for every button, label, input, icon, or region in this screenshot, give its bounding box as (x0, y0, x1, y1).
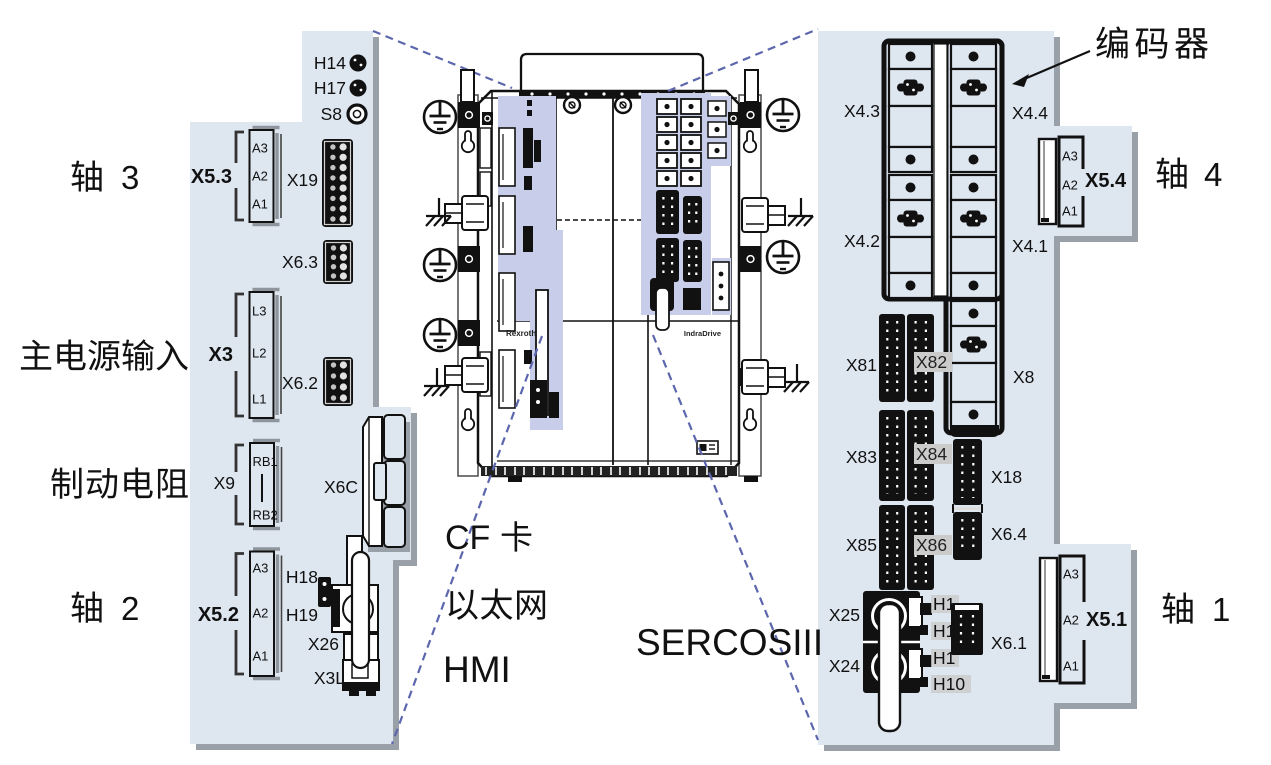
svg-text:X81: X81 (846, 355, 877, 375)
svg-text:X4.1: X4.1 (1012, 236, 1048, 256)
svg-text:4: 4 (1204, 156, 1222, 193)
svg-text:HMI: HMI (443, 649, 511, 690)
svg-text:3: 3 (121, 159, 139, 196)
svg-text:X6.3: X6.3 (282, 252, 318, 272)
svg-text:X5.4: X5.4 (1085, 170, 1127, 192)
svg-text:SERCOSIII: SERCOSIII (636, 622, 823, 663)
svg-text:X85: X85 (846, 535, 877, 555)
svg-text:X82: X82 (916, 352, 947, 372)
svg-text:A1: A1 (252, 197, 268, 212)
svg-text:L2: L2 (252, 346, 266, 361)
svg-text:S8: S8 (321, 104, 342, 124)
svg-text:X84: X84 (916, 444, 947, 464)
svg-text:X9: X9 (214, 473, 235, 493)
svg-text:RB2: RB2 (253, 508, 278, 523)
svg-text:A3: A3 (1063, 567, 1079, 582)
svg-text:2: 2 (121, 590, 139, 627)
svg-text:L1: L1 (252, 392, 266, 407)
svg-text:X5.1: X5.1 (1086, 609, 1127, 631)
svg-text:X8: X8 (1013, 367, 1034, 387)
svg-text:X4.3: X4.3 (844, 101, 880, 121)
svg-text:X26: X26 (308, 634, 339, 654)
svg-text:IndraDrive: IndraDrive (684, 329, 721, 338)
svg-text:A3: A3 (1062, 149, 1078, 164)
svg-text:A1: A1 (1063, 659, 1079, 674)
svg-text:X6.1: X6.1 (991, 633, 1027, 653)
svg-text:X4.2: X4.2 (844, 231, 880, 251)
svg-text:RB1: RB1 (253, 454, 278, 469)
svg-text:X19: X19 (287, 170, 318, 190)
svg-text:H10: H10 (933, 674, 965, 694)
svg-text:X5.2: X5.2 (198, 604, 239, 626)
svg-text:1: 1 (1212, 591, 1230, 628)
svg-text:Rexroth: Rexroth (506, 329, 536, 338)
svg-text:A2: A2 (252, 169, 268, 184)
svg-text:H17: H17 (314, 78, 346, 98)
svg-text:CF: CF (445, 519, 490, 557)
svg-text:X24: X24 (829, 656, 860, 676)
svg-text:A3: A3 (253, 561, 269, 576)
svg-text:X6C: X6C (324, 477, 358, 497)
svg-text:X25: X25 (829, 605, 860, 625)
svg-text:A2: A2 (1063, 613, 1079, 628)
svg-text:A1: A1 (253, 649, 269, 664)
svg-text:X6.2: X6.2 (282, 373, 318, 393)
svg-text:A3: A3 (252, 141, 268, 156)
svg-text:A1: A1 (1062, 204, 1078, 219)
svg-text:X18: X18 (991, 467, 1022, 487)
svg-text:L3: L3 (252, 304, 266, 319)
svg-text:X3L: X3L (314, 668, 345, 688)
svg-text:H19: H19 (286, 605, 318, 625)
svg-text:X6.4: X6.4 (991, 524, 1027, 544)
svg-text:X4.4: X4.4 (1012, 103, 1048, 123)
svg-text:X83: X83 (846, 447, 877, 467)
svg-text:X86: X86 (916, 535, 947, 555)
svg-text:H18: H18 (286, 567, 318, 587)
svg-text:A2: A2 (1062, 178, 1078, 193)
svg-text:X3: X3 (209, 344, 233, 366)
svg-text:A2: A2 (253, 606, 269, 621)
svg-text:H14: H14 (314, 53, 346, 73)
svg-text:X5.3: X5.3 (191, 166, 232, 188)
